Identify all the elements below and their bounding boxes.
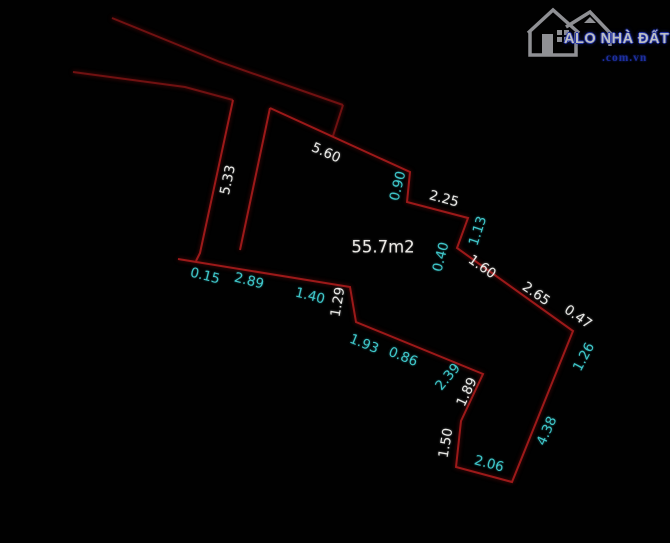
dimension-label-2.89: 2.89: [232, 270, 265, 293]
cadastral-map-canvas: 5.335.600.902.251.130.401.602.650.471.26…: [0, 0, 670, 543]
dimension-label-1.29: 1.29: [328, 286, 349, 318]
dimension-label-5.33: 5.33: [217, 164, 239, 197]
dimension-label-1.60: 1.60: [465, 252, 499, 282]
dimension-labels-layer: 5.335.600.902.251.130.401.602.650.471.26…: [0, 0, 670, 543]
watermark-title: ALO NHÀ ĐẤT: [564, 31, 670, 47]
dimension-label-1.40: 1.40: [293, 285, 326, 308]
alonhadat-watermark: ALO NHÀ ĐẤT .com.vn: [524, 2, 670, 70]
dimension-label-0.90: 0.90: [387, 169, 410, 202]
dimension-label-4.38: 4.38: [534, 414, 561, 448]
dimension-label-0.86: 0.86: [386, 344, 420, 370]
dimension-label-1.26: 1.26: [570, 340, 598, 374]
dimension-label-0.40: 0.40: [430, 240, 453, 273]
dimension-label-1.50: 1.50: [436, 427, 457, 459]
dimension-label-1.13: 1.13: [466, 214, 491, 248]
dimension-label-1.93: 1.93: [347, 331, 381, 357]
watermark-domain: .com.vn: [602, 52, 647, 64]
dimension-label-2.06: 2.06: [472, 452, 505, 475]
dimension-label-5.60: 5.60: [309, 140, 343, 167]
dimension-label-1.89: 1.89: [453, 375, 480, 409]
dimension-label-2.25: 2.25: [427, 187, 460, 210]
dimension-label-2.65: 2.65: [519, 279, 553, 309]
dimension-label-0.15: 0.15: [188, 265, 221, 288]
dimension-label-0.47: 0.47: [561, 302, 595, 332]
area-label: 55.7m2: [351, 238, 414, 257]
